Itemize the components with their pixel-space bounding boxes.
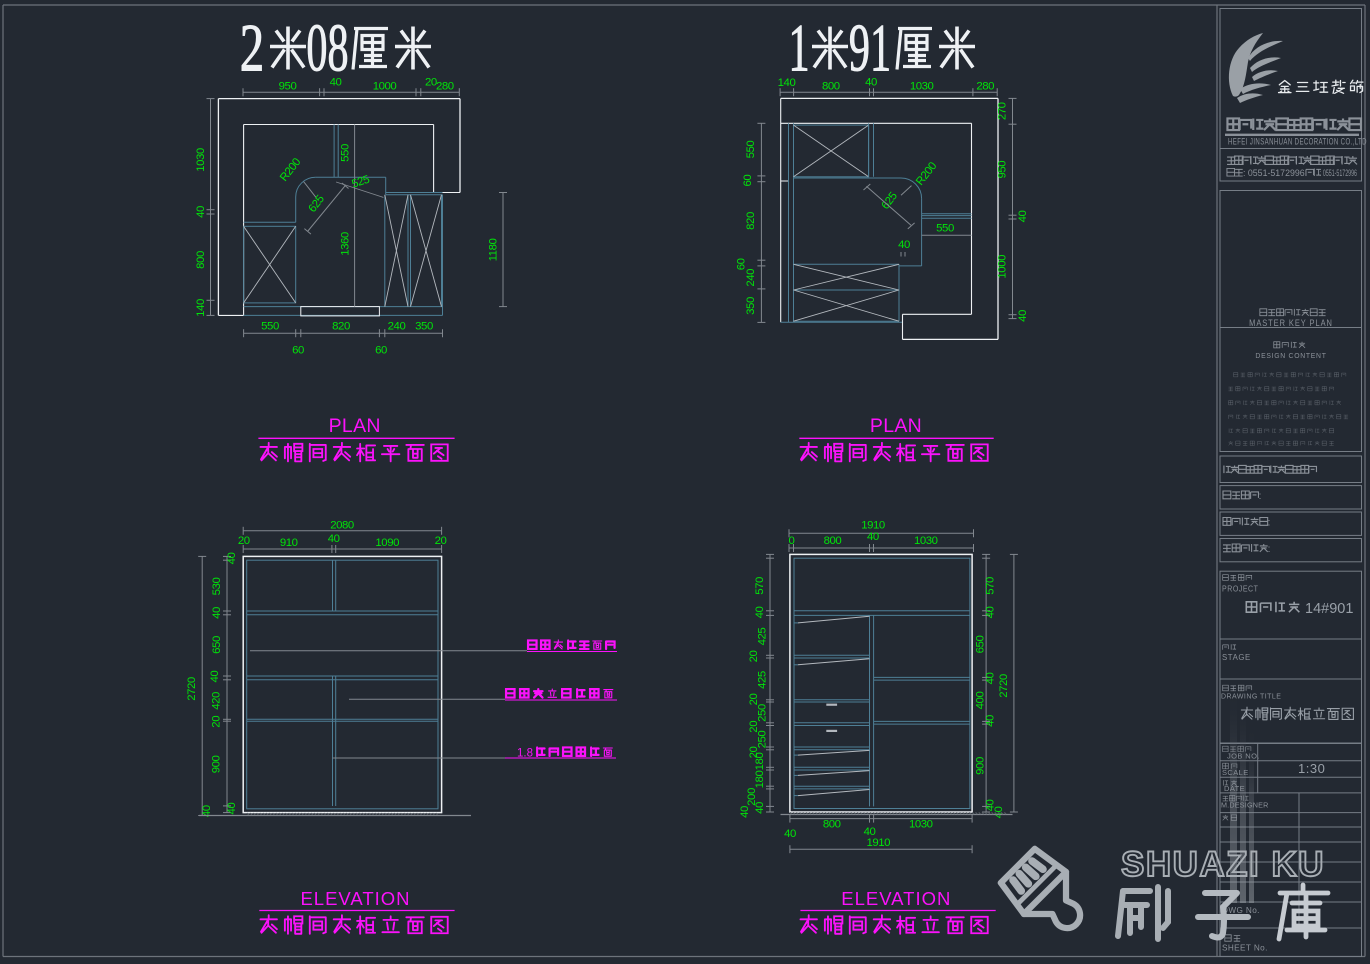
svg-text:40: 40 <box>754 802 766 814</box>
svg-text:40: 40 <box>226 553 238 565</box>
svg-text:800: 800 <box>824 535 842 547</box>
svg-text:PLAN: PLAN <box>870 415 922 437</box>
svg-text:20: 20 <box>435 535 447 547</box>
svg-text:425: 425 <box>757 671 769 689</box>
svg-text:40: 40 <box>209 671 221 683</box>
svg-text:570: 570 <box>985 577 997 595</box>
svg-text:40: 40 <box>754 607 766 619</box>
svg-text:DESIGN CONTENT: DESIGN CONTENT <box>1255 351 1326 360</box>
svg-text:140: 140 <box>778 77 796 89</box>
svg-text:20: 20 <box>748 694 760 706</box>
svg-text:650: 650 <box>211 636 223 654</box>
svg-text:40: 40 <box>898 239 910 251</box>
svg-text:650: 650 <box>975 636 987 654</box>
svg-text:14#901: 14#901 <box>1305 601 1353 617</box>
svg-text:1000: 1000 <box>373 81 397 93</box>
svg-text:40: 40 <box>330 77 342 89</box>
svg-text:20: 20 <box>748 651 760 663</box>
svg-text:2720: 2720 <box>186 677 198 701</box>
svg-text:425: 425 <box>757 628 769 646</box>
svg-text:40: 40 <box>195 206 207 218</box>
svg-text:820: 820 <box>745 212 757 230</box>
svg-text:20: 20 <box>238 535 250 547</box>
svg-text:570: 570 <box>754 577 766 595</box>
svg-text:1360: 1360 <box>339 232 351 256</box>
svg-text:SHEET No.: SHEET No. <box>1222 944 1268 953</box>
svg-text:60: 60 <box>292 345 304 357</box>
svg-text:40: 40 <box>985 607 997 619</box>
svg-text:MASTER KEY PLAN: MASTER KEY PLAN <box>1249 318 1333 328</box>
svg-text:820: 820 <box>332 321 350 333</box>
svg-text:40: 40 <box>226 803 238 815</box>
svg-text:140: 140 <box>195 299 207 317</box>
svg-text:1180: 1180 <box>488 239 500 262</box>
svg-text:40: 40 <box>985 673 997 685</box>
svg-text:SHUAZI KU: SHUAZI KU <box>1121 845 1325 884</box>
svg-text:PLAN: PLAN <box>329 415 381 437</box>
svg-text:1090: 1090 <box>375 537 399 549</box>
svg-text::: : <box>1259 491 1262 502</box>
svg-text::: : <box>1268 544 1271 555</box>
svg-text:: 0551-5172996: : 0551-5172996 <box>1320 168 1357 179</box>
svg-text:400: 400 <box>975 692 987 710</box>
svg-text:950: 950 <box>279 81 297 93</box>
svg-text:550: 550 <box>261 321 279 333</box>
svg-text:40: 40 <box>867 531 879 543</box>
svg-text:1000: 1000 <box>997 255 1009 279</box>
svg-text:900: 900 <box>975 757 987 775</box>
svg-text:550: 550 <box>339 144 351 162</box>
svg-text:: 0551-5172996: : 0551-5172996 <box>1243 168 1305 178</box>
svg-text:2720: 2720 <box>998 674 1010 698</box>
svg-text:1: 1 <box>788 12 809 87</box>
svg-text:550: 550 <box>745 141 757 159</box>
svg-text:800: 800 <box>822 81 840 93</box>
svg-text:900: 900 <box>211 755 223 773</box>
svg-text:1910: 1910 <box>867 837 891 849</box>
svg-text:60: 60 <box>736 258 748 270</box>
svg-text:420: 420 <box>211 692 223 710</box>
svg-text:2: 2 <box>240 10 264 86</box>
svg-text:40: 40 <box>211 607 223 619</box>
svg-text:550: 550 <box>936 222 954 234</box>
svg-text:530: 530 <box>211 578 223 596</box>
svg-text:40: 40 <box>985 715 997 727</box>
svg-text:270: 270 <box>997 102 1009 120</box>
svg-text:PROJECT: PROJECT <box>1222 584 1258 593</box>
svg-text:180: 180 <box>754 771 766 789</box>
svg-text:800: 800 <box>195 251 207 269</box>
svg-text:STAGE: STAGE <box>1222 653 1251 662</box>
svg-text:ELEVATION: ELEVATION <box>841 888 951 909</box>
svg-text:40: 40 <box>328 533 340 545</box>
svg-text::: : <box>1268 518 1271 529</box>
svg-text:1030: 1030 <box>909 819 933 831</box>
svg-text:350: 350 <box>745 297 757 315</box>
svg-text:40: 40 <box>1017 211 1029 223</box>
svg-text:40: 40 <box>784 828 796 840</box>
svg-text:40: 40 <box>865 77 877 89</box>
svg-text:2080: 2080 <box>330 520 354 532</box>
svg-text:91: 91 <box>849 12 891 87</box>
svg-text:800: 800 <box>823 819 841 831</box>
svg-text:950: 950 <box>997 161 1009 179</box>
svg-text:60: 60 <box>375 345 387 357</box>
svg-text:240: 240 <box>388 321 406 333</box>
svg-text:1910: 1910 <box>861 520 885 532</box>
svg-text:ELEVATION: ELEVATION <box>300 888 410 909</box>
svg-text:240: 240 <box>745 269 757 287</box>
svg-text:1030: 1030 <box>914 535 938 547</box>
svg-text:180: 180 <box>754 753 766 771</box>
svg-text:280: 280 <box>976 81 994 93</box>
svg-text:250: 250 <box>757 704 769 722</box>
svg-text:280: 280 <box>436 81 454 93</box>
svg-text:08: 08 <box>306 12 348 87</box>
svg-text:910: 910 <box>280 537 298 549</box>
svg-text:250: 250 <box>757 731 769 749</box>
svg-text:350: 350 <box>415 321 433 333</box>
svg-text:1030: 1030 <box>195 148 207 172</box>
svg-text:20: 20 <box>211 716 223 728</box>
svg-text:40: 40 <box>739 806 751 818</box>
svg-text:40: 40 <box>1017 310 1029 322</box>
svg-text:HEFEI JINSANHUAN DECORATION CO: HEFEI JINSANHUAN DECORATION CO.,LTD <box>1228 136 1367 147</box>
svg-text:1:30: 1:30 <box>1298 761 1325 776</box>
svg-text:1030: 1030 <box>910 81 934 93</box>
svg-text:60: 60 <box>742 175 754 187</box>
svg-text:DWG No.: DWG No. <box>1222 906 1260 915</box>
